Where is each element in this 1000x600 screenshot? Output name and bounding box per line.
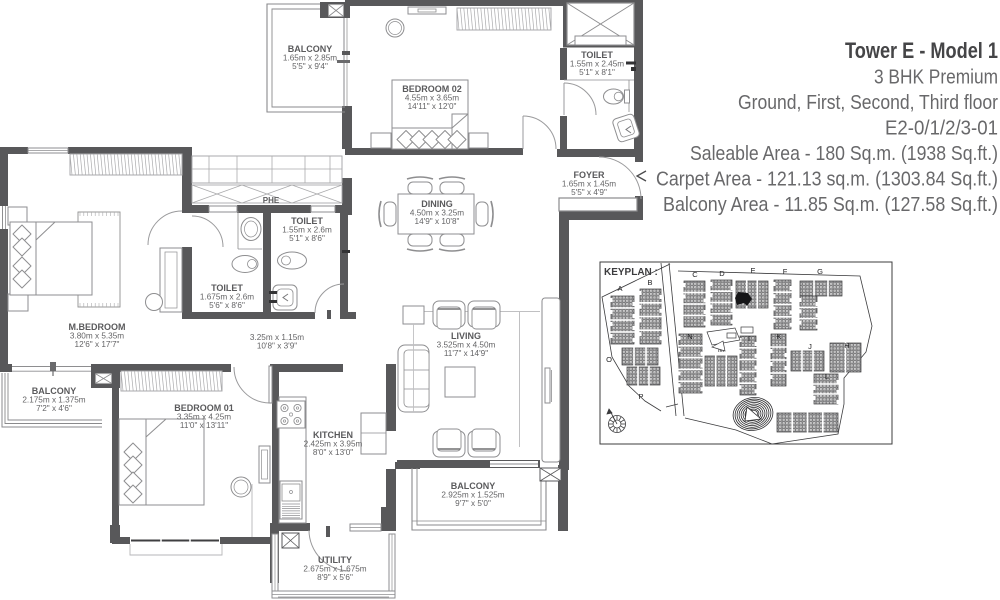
svg-text:C: C (692, 270, 698, 279)
svg-text:TOILET: TOILET (291, 216, 323, 226)
svg-text:9'7" x 5'0": 9'7" x 5'0" (455, 499, 491, 508)
svg-text:D: D (719, 269, 725, 278)
svg-text:Ground, First, Second, Third f: Ground, First, Second, Third floor (738, 91, 998, 114)
svg-text:BALCONY: BALCONY (451, 481, 496, 491)
svg-text:5'5" x 4'9": 5'5" x 4'9" (571, 188, 607, 197)
svg-text:F: F (783, 267, 788, 276)
svg-text:N: N (687, 332, 692, 341)
svg-text:TOILET: TOILET (581, 50, 613, 60)
svg-text:BEDROOM 02: BEDROOM 02 (402, 84, 462, 94)
svg-text:DINING: DINING (421, 199, 453, 209)
svg-text:P: P (638, 392, 643, 401)
svg-text:BALCONY: BALCONY (32, 386, 77, 396)
svg-text:BEDROOM 01: BEDROOM 01 (174, 403, 234, 413)
svg-text:L: L (825, 372, 829, 381)
svg-text:11'7" x 14'9": 11'7" x 14'9" (444, 349, 488, 358)
svg-text:M.BEDROOM: M.BEDROOM (69, 322, 126, 332)
svg-text:5'1" x 8'6": 5'1" x 8'6" (289, 234, 325, 243)
svg-text:LIVING: LIVING (451, 331, 481, 341)
svg-text:K: K (776, 332, 781, 341)
svg-text:Balcony Area - 11.85 Sq.m. (12: Balcony Area - 11.85 Sq.m. (127.58 Sq.ft… (663, 193, 998, 216)
svg-text:E2-0/1/2/3-01: E2-0/1/2/3-01 (885, 117, 998, 140)
svg-text:B: B (647, 278, 652, 287)
svg-text:Tower E - Model 1: Tower E - Model 1 (845, 38, 998, 63)
svg-text:12'6" x 17'7": 12'6" x 17'7" (75, 340, 120, 349)
svg-text:UTILITY: UTILITY (318, 555, 352, 565)
svg-text:H: H (844, 341, 849, 350)
svg-text:FOYER: FOYER (573, 170, 605, 180)
svg-text:BALCONY: BALCONY (288, 44, 333, 54)
svg-text:I: I (748, 334, 750, 343)
svg-text:8'9" x 5'6": 8'9" x 5'6" (317, 573, 353, 582)
svg-text:O: O (606, 355, 612, 364)
svg-text:14'9" x 10'8": 14'9" x 10'8" (415, 217, 460, 226)
svg-text:7'2" x 4'6": 7'2" x 4'6" (36, 404, 72, 413)
svg-text:Carpet Area - 121.13 sq.m. (13: Carpet Area - 121.13 sq.m. (1303.84 Sq.f… (656, 168, 998, 191)
svg-text:5'6" x 8'6": 5'6" x 8'6" (209, 301, 245, 310)
svg-text:3 BHK Premium: 3 BHK Premium (874, 66, 998, 89)
svg-text:A: A (617, 284, 622, 293)
svg-text:10'8" x 3'9": 10'8" x 3'9" (257, 342, 297, 351)
svg-text:E: E (750, 266, 755, 275)
svg-text:G: G (817, 267, 823, 276)
svg-text:KEYPLAN :: KEYPLAN : (604, 267, 658, 278)
svg-text:5'5" x 9'4": 5'5" x 9'4" (292, 62, 328, 71)
svg-text:Saleable Area - 180 Sq.m. (193: Saleable Area - 180 Sq.m. (1938 Sq.ft.) (690, 142, 998, 165)
svg-text:PHE: PHE (263, 196, 280, 205)
svg-text:J: J (808, 342, 812, 351)
svg-text:5'1" x 8'1": 5'1" x 8'1" (579, 68, 615, 77)
svg-text:11'0" x 13'11": 11'0" x 13'11" (180, 421, 228, 430)
svg-text:TOILET: TOILET (211, 283, 243, 293)
svg-text:14'11" x 12'0": 14'11" x 12'0" (408, 102, 457, 111)
svg-text:8'0" x 13'0": 8'0" x 13'0" (313, 448, 353, 457)
svg-text:KITCHEN: KITCHEN (313, 430, 353, 440)
